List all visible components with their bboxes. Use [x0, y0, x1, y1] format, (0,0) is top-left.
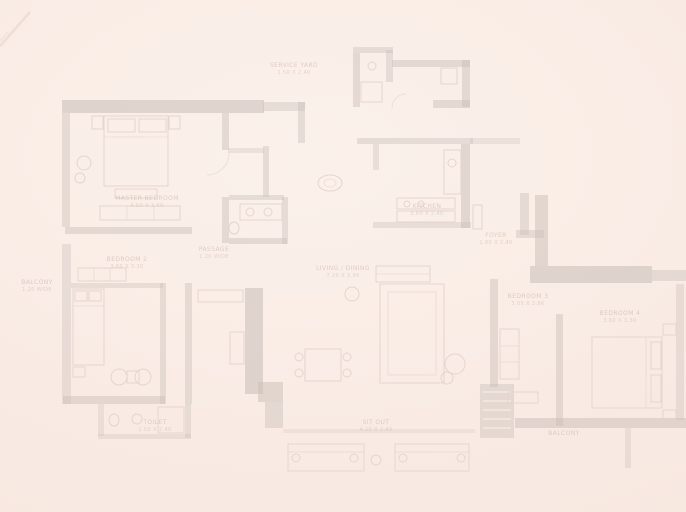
paper-crease-artifact [0, 12, 30, 46]
dining-set [295, 349, 351, 381]
master-toilet-fixtures [229, 204, 282, 234]
master-bedroom-furniture [75, 116, 229, 220]
kitchen-counters [397, 150, 461, 222]
sit-out-furniture [288, 444, 469, 471]
floor-plan-drawing [0, 0, 686, 512]
utility-counters [198, 290, 244, 364]
bedroom-4-furniture [592, 324, 676, 421]
floorplan-canvas: SERVICE YARD 1.50 X 2.40 KITCHEN 3.60 X … [0, 0, 686, 512]
toilet-2-fixtures [109, 407, 184, 433]
living-room-furniture [345, 266, 465, 384]
hall-table [318, 175, 482, 229]
